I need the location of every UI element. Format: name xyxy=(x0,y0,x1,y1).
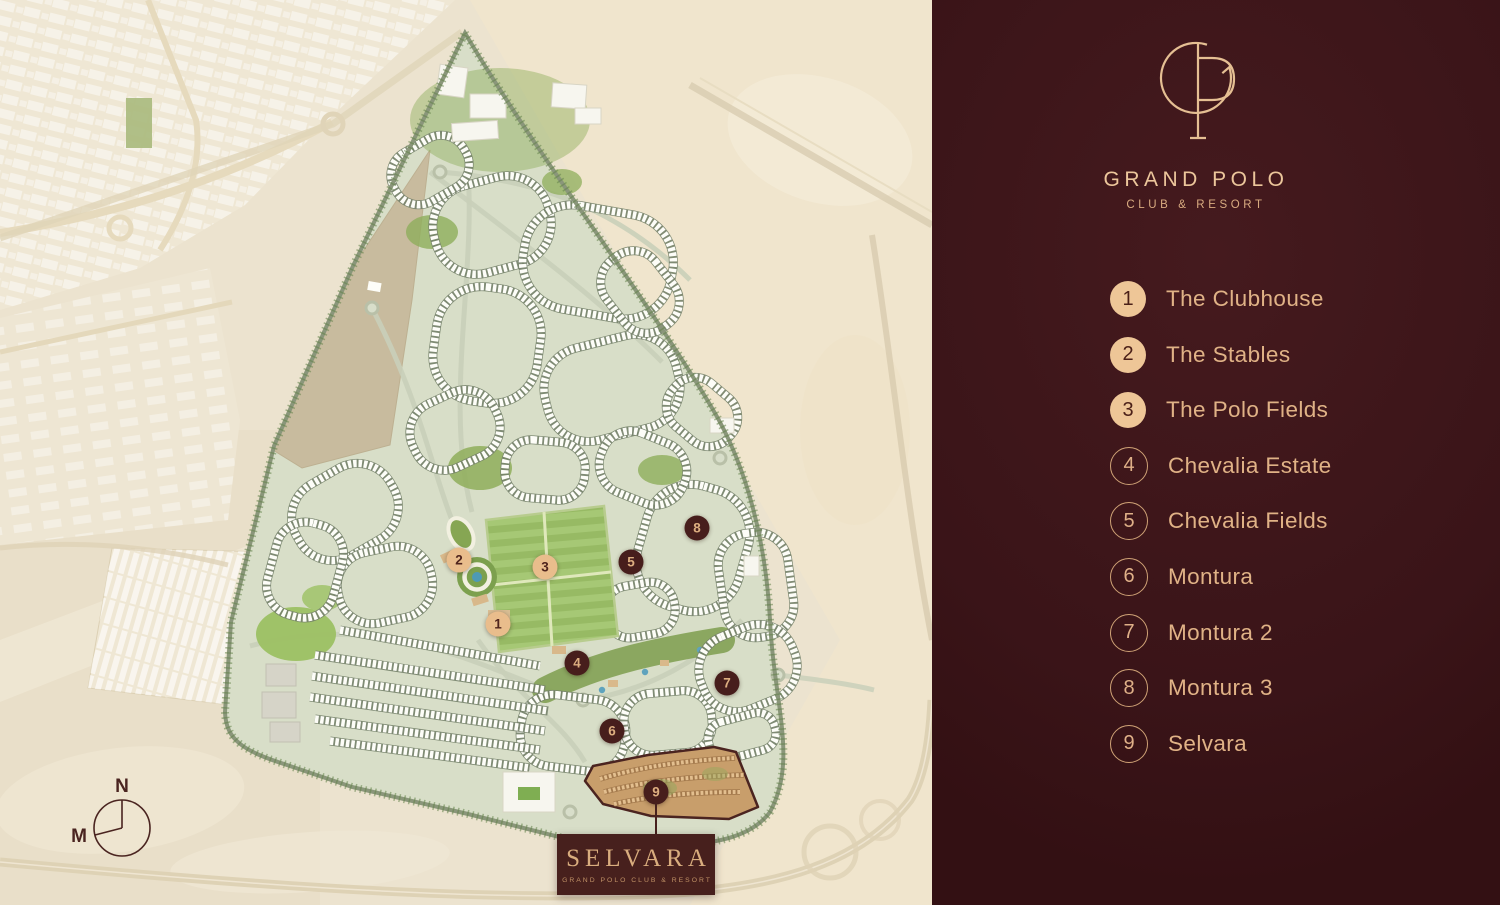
legend-item-chevalia-estate: 4 Chevalia Estate xyxy=(1110,448,1332,484)
legend-item-number: 4 xyxy=(1110,447,1148,485)
legend-item-number: 7 xyxy=(1110,614,1148,652)
legend-item-the-stables: 2 The Stables xyxy=(1110,337,1332,373)
selvara-callout-subtitle: GRAND POLO CLUB & RESORT xyxy=(562,877,712,884)
legend-item-number: 2 xyxy=(1110,337,1146,373)
legend-sidebar: GRAND POLO CLUB & RESORT 1 The Clubhouse… xyxy=(932,0,1500,905)
legend-list: 1 The Clubhouse 2 The Stables 3 The Polo… xyxy=(1110,281,1332,762)
legend-item-montura-3: 8 Montura 3 xyxy=(1110,670,1332,706)
map-marker-3: 3 xyxy=(533,555,558,580)
gp-monogram-logo xyxy=(1126,28,1266,158)
legend-item-number: 1 xyxy=(1110,281,1146,317)
compass: N M xyxy=(68,772,172,882)
map-marker-9: 9 xyxy=(644,780,669,805)
legend-item-label: Chevalia Estate xyxy=(1168,453,1332,479)
legend-item-label: Montura xyxy=(1168,564,1253,590)
legend-item-montura-2: 7 Montura 2 xyxy=(1110,615,1332,651)
legend-item-number: 9 xyxy=(1110,725,1148,763)
map-marker-6: 6 xyxy=(600,719,625,744)
legend-item-number: 8 xyxy=(1110,669,1148,707)
brand-title: GRAND POLO xyxy=(932,168,1460,192)
legend-item-label: Chevalia Fields xyxy=(1168,508,1328,534)
map-marker-8: 8 xyxy=(685,516,710,541)
brand-subtitle: CLUB & RESORT xyxy=(932,199,1460,211)
map-marker-1: 1 xyxy=(486,612,511,637)
legend-item-label: The Stables xyxy=(1166,342,1290,368)
legend-item-the-polo-fields: 3 The Polo Fields xyxy=(1110,392,1332,428)
legend-item-number: 3 xyxy=(1110,392,1146,428)
legend-item-label: Montura 3 xyxy=(1168,675,1273,701)
legend-item-label: The Clubhouse xyxy=(1166,286,1324,312)
grand-polo-masterplan-page: 123456789 SELVARA GRAND POLO CLUB & RESO… xyxy=(0,0,1500,905)
map-marker-4: 4 xyxy=(565,651,590,676)
map-marker-2: 2 xyxy=(447,548,472,573)
legend-item-number: 6 xyxy=(1110,558,1148,596)
legend-item-label: Montura 2 xyxy=(1168,620,1273,646)
legend-item-number: 5 xyxy=(1110,502,1148,540)
compass-west-label: M xyxy=(71,826,87,847)
map-marker-7: 7 xyxy=(715,671,740,696)
legend-item-chevalia-fields: 5 Chevalia Fields xyxy=(1110,503,1332,539)
selvara-callout-line xyxy=(655,803,657,836)
compass-north-label: N xyxy=(115,776,129,797)
selvara-callout-title: SELVARA xyxy=(566,846,711,871)
map-marker-5: 5 xyxy=(619,550,644,575)
legend-item-label: Selvara xyxy=(1168,731,1247,757)
legend-item-selvara: 9 Selvara xyxy=(1110,726,1332,762)
legend-item-montura: 6 Montura xyxy=(1110,559,1332,595)
legend-item-label: The Polo Fields xyxy=(1166,397,1328,423)
legend-item-the-clubhouse: 1 The Clubhouse xyxy=(1110,281,1332,317)
selvara-callout: SELVARA GRAND POLO CLUB & RESORT xyxy=(557,834,715,895)
masterplan-map: 123456789 SELVARA GRAND POLO CLUB & RESO… xyxy=(0,0,932,905)
masterplan-art xyxy=(0,0,932,905)
